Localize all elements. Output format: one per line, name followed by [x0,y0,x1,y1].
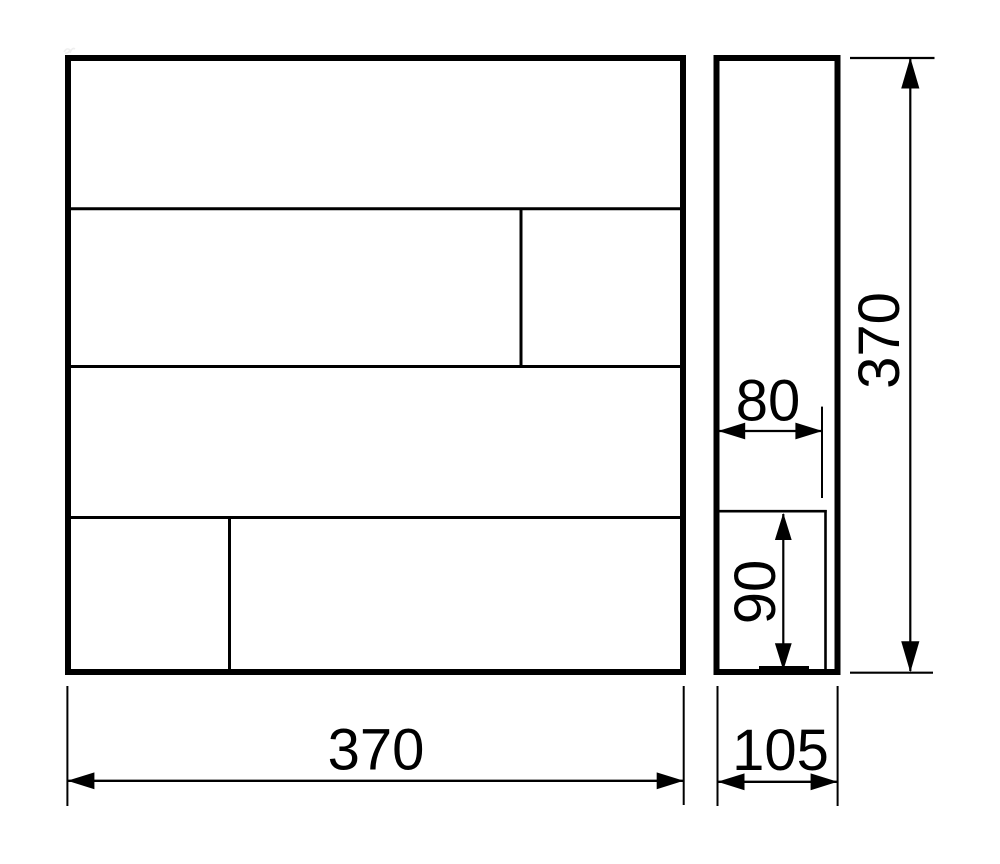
svg-text:80: 80 [736,369,801,434]
svg-text:105: 105 [732,718,829,783]
svg-text:370: 370 [328,718,425,783]
svg-text:370: 370 [847,292,912,389]
svg-text:90: 90 [723,560,788,625]
